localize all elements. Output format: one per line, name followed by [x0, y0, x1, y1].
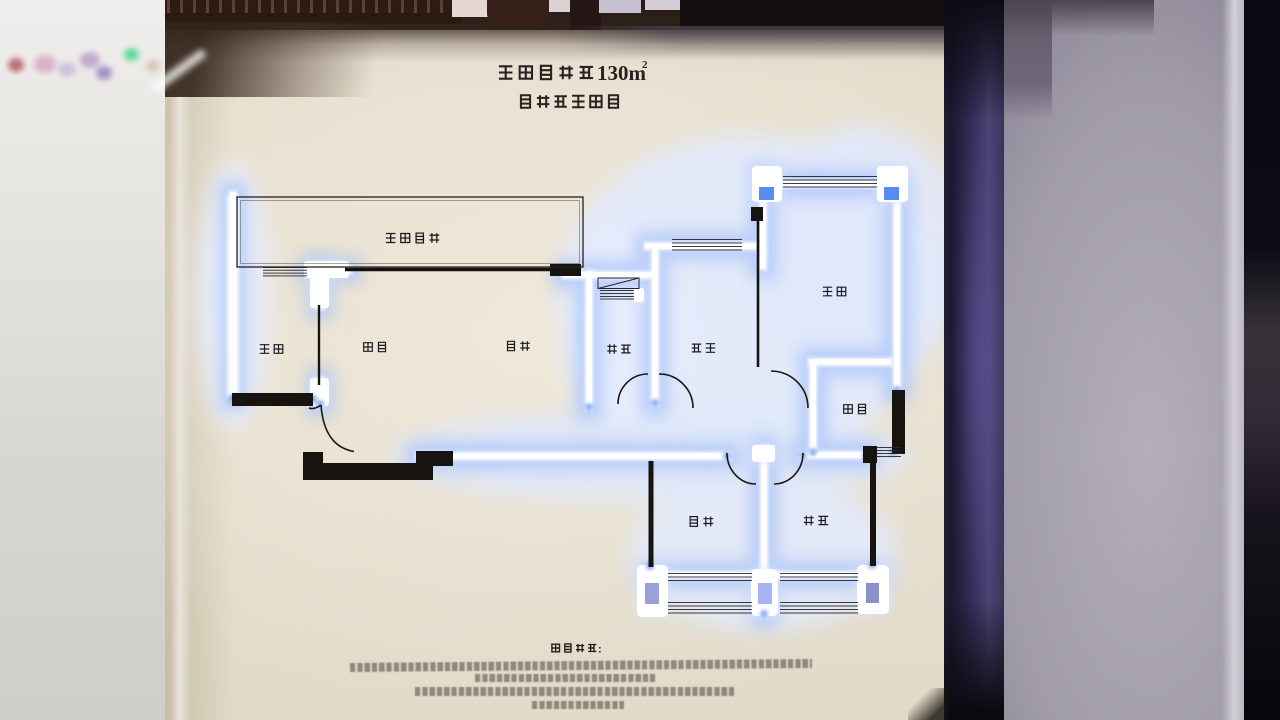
svg-text:2: 2 [642, 59, 648, 71]
svg-text::: : [598, 644, 602, 656]
svg-text:130m: 130m [597, 61, 647, 85]
